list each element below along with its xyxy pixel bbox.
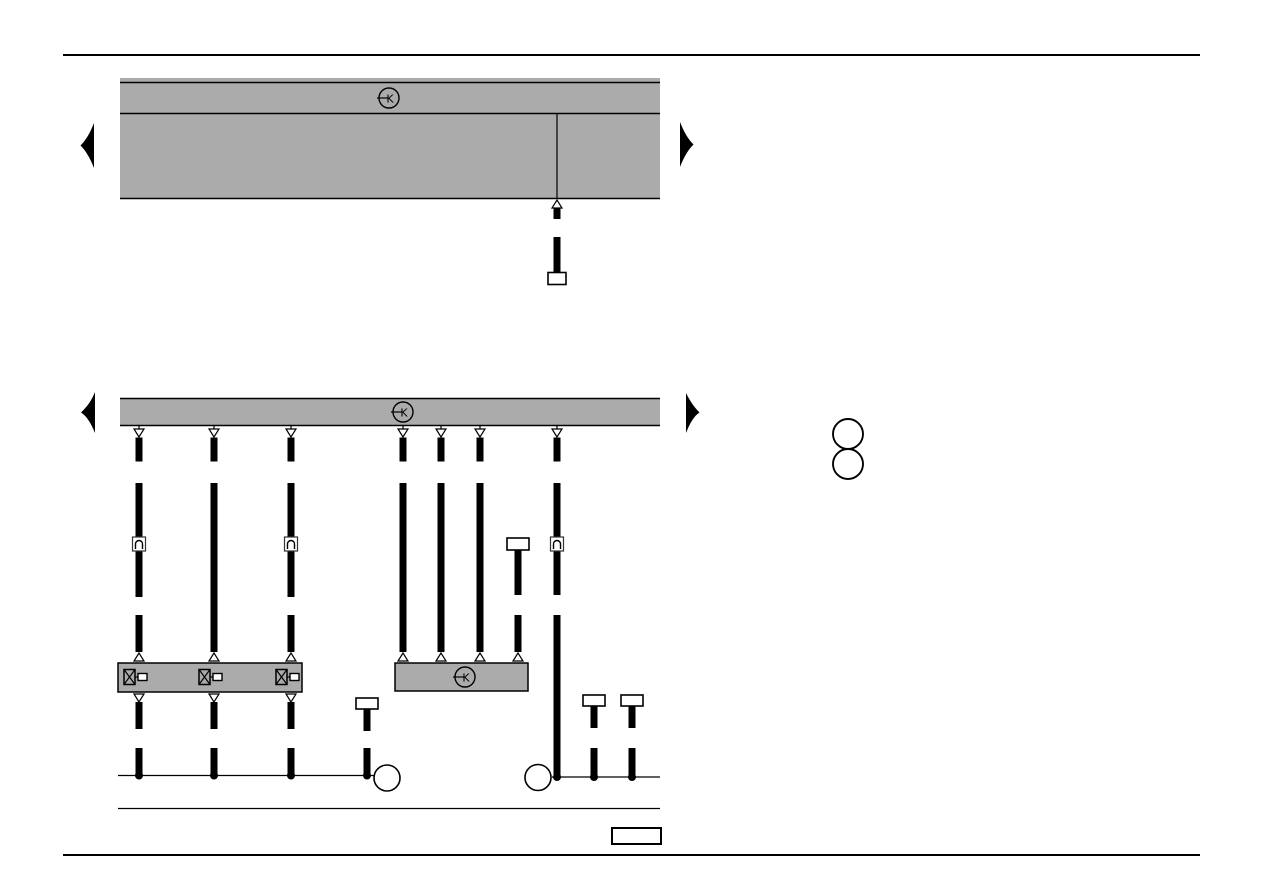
arrowhead-up-icon (398, 653, 408, 661)
flat-connector (621, 695, 643, 706)
flat-connector (356, 698, 378, 709)
main-section: K (81, 392, 700, 844)
arrowhead-down-icon (398, 429, 408, 437)
callout-circle-1 (833, 419, 863, 449)
arrowhead-down-icon (552, 429, 562, 437)
k-label: K (386, 93, 394, 106)
arrowhead-down-icon (134, 694, 144, 702)
arrowhead-down-icon (209, 429, 219, 437)
arrowhead-up-icon (475, 653, 485, 661)
wire-2 (209, 426, 219, 780)
continuation-arrow-left-icon (81, 123, 95, 168)
wire-8 (551, 426, 564, 782)
arrowhead-down-icon (209, 694, 219, 702)
arrowhead-up-icon (209, 653, 219, 661)
bus-bar-panel (120, 399, 660, 426)
callout-circle-2 (833, 449, 863, 479)
valve-component-box (118, 663, 302, 692)
arrowhead-up-icon (436, 653, 446, 661)
flat-connector (548, 273, 566, 285)
arrowhead-down-icon (134, 429, 144, 437)
k-component-box: K (395, 663, 528, 691)
top-section: K (81, 78, 694, 285)
arrowhead-up-icon (286, 653, 296, 661)
plug-connector-icon (285, 537, 298, 551)
k-label: K (462, 672, 470, 685)
arrowhead-down-icon (475, 429, 485, 437)
continuation-arrow-right-icon (680, 122, 694, 167)
arrowhead-up-icon (552, 200, 562, 208)
wire-7 (507, 538, 529, 661)
flat-connector (583, 695, 605, 706)
stub-connector-left (356, 698, 378, 780)
wire-segment (554, 208, 561, 219)
arrowhead-up-icon (134, 653, 144, 661)
track-number-box (612, 828, 661, 844)
stub-connector-right-2 (621, 695, 643, 781)
ground-circle-left (374, 765, 400, 791)
ground-circle-right (525, 765, 551, 791)
arrowhead-up-icon (513, 653, 523, 661)
wire-3 (285, 426, 298, 780)
arrowhead-down-icon (286, 429, 296, 437)
continuation-arrow-left-icon (81, 392, 95, 433)
stub-connector-right-1 (583, 695, 605, 781)
wire-5 (436, 426, 446, 662)
plug-connector-icon (133, 537, 146, 551)
diagram-svg: K K (0, 0, 1263, 893)
wire-6 (475, 426, 485, 662)
flat-connector (507, 538, 529, 550)
arrowhead-down-icon (286, 694, 296, 702)
arrowhead-down-icon (436, 429, 446, 437)
wiring-diagram-page: K K (0, 0, 1263, 893)
plug-connector-icon (551, 537, 564, 551)
k-label: K (400, 407, 408, 420)
wire-4 (398, 426, 408, 662)
wire-1 (133, 426, 146, 780)
continuation-arrow-right-icon (686, 393, 700, 433)
wire-segment (554, 237, 561, 273)
